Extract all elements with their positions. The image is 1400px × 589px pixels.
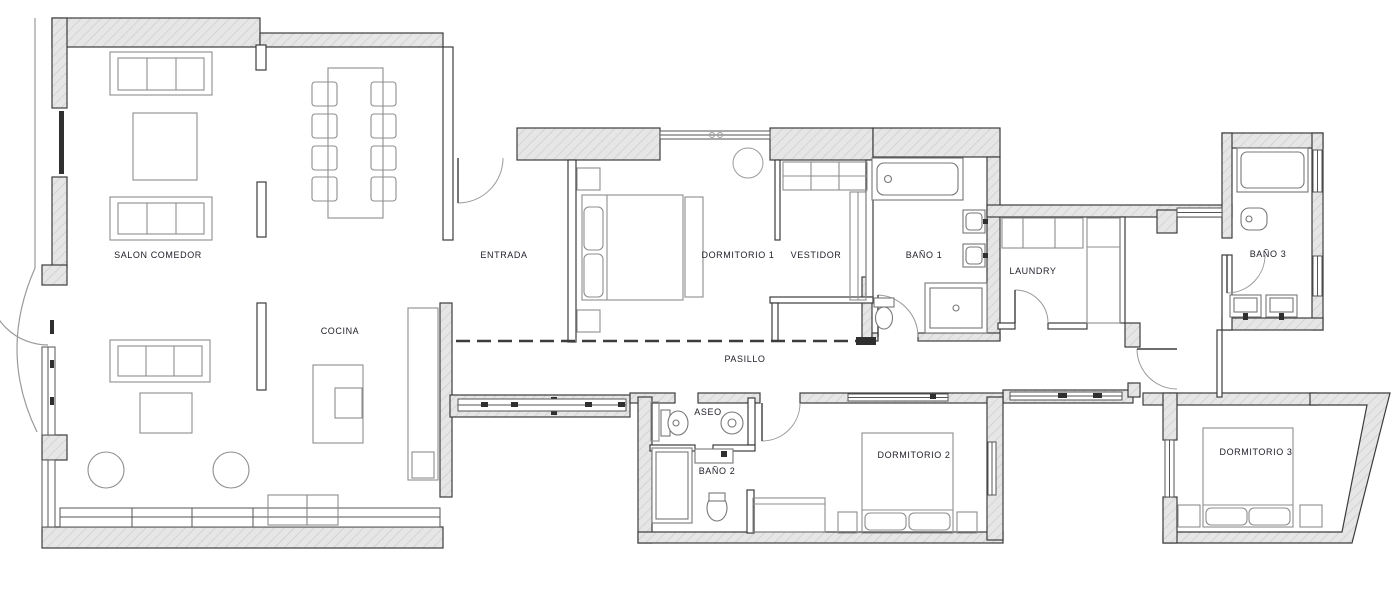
coffee-table-bottom — [140, 393, 192, 433]
bathtub-bano-1 — [872, 158, 963, 200]
label-dormitorio-1: DORMITORIO 1 — [701, 250, 774, 260]
toilet-bano-3 — [1241, 208, 1267, 230]
toilet-bano-1 — [874, 298, 894, 329]
coffee-table-top — [133, 113, 197, 180]
label-entrada: ENTRADA — [480, 250, 527, 260]
floorplan-drawing: SALON COMEDOR COCINA ENTRADA DORMITORIO … — [0, 0, 1400, 589]
sideboard-dormitorio-2 — [753, 498, 825, 532]
kitchen-island — [313, 365, 363, 443]
label-aseo: ASEO — [694, 407, 721, 417]
dining-table-and-chairs — [312, 68, 396, 218]
label-vestidor: VESTIDOR — [791, 250, 842, 260]
label-bano-2: BAÑO 2 — [699, 466, 736, 476]
label-pasillo: PASILLO — [724, 354, 765, 364]
label-dormitorio-3: DORMITORIO 3 — [1219, 447, 1292, 457]
shower-bano-1 — [925, 283, 987, 333]
sink-bano-2 — [695, 449, 733, 463]
bed-dormitorio-2 — [838, 433, 977, 533]
label-salon-comedor: SALON COMEDOR — [114, 250, 202, 260]
sink-aseo — [721, 412, 743, 434]
sinks-bano-3 — [1230, 295, 1297, 320]
label-dormitorio-2: DORMITORIO 2 — [877, 450, 950, 460]
sofa-top — [110, 52, 212, 95]
wardrobe-vestidor — [783, 162, 867, 300]
label-laundry: LAUNDRY — [1009, 266, 1056, 276]
bathtub-bano-3 — [1237, 148, 1308, 192]
label-bano-3: BAÑO 3 — [1250, 249, 1287, 259]
sofa-bottom — [110, 340, 210, 382]
floorplan-canvas: SALON COMEDOR COCINA ENTRADA DORMITORIO … — [0, 0, 1400, 589]
laundry-cabinet — [1087, 218, 1120, 323]
round-side-tables — [88, 452, 249, 488]
toilet-aseo — [661, 410, 688, 436]
terrace-outline — [17, 18, 37, 432]
sofa-middle — [110, 197, 212, 240]
kitchen-counter — [268, 308, 438, 525]
toilet-bano-2 — [707, 493, 727, 521]
sinks-bano-1 — [963, 210, 988, 267]
label-cocina: COCINA — [321, 326, 360, 336]
bed-dormitorio-1 — [577, 148, 763, 332]
label-bano-1: BAÑO 1 — [906, 250, 943, 260]
shower-bano-2 — [652, 448, 692, 523]
laundry-shelves — [1002, 218, 1083, 248]
bed-dormitorio-3 — [1178, 428, 1322, 527]
